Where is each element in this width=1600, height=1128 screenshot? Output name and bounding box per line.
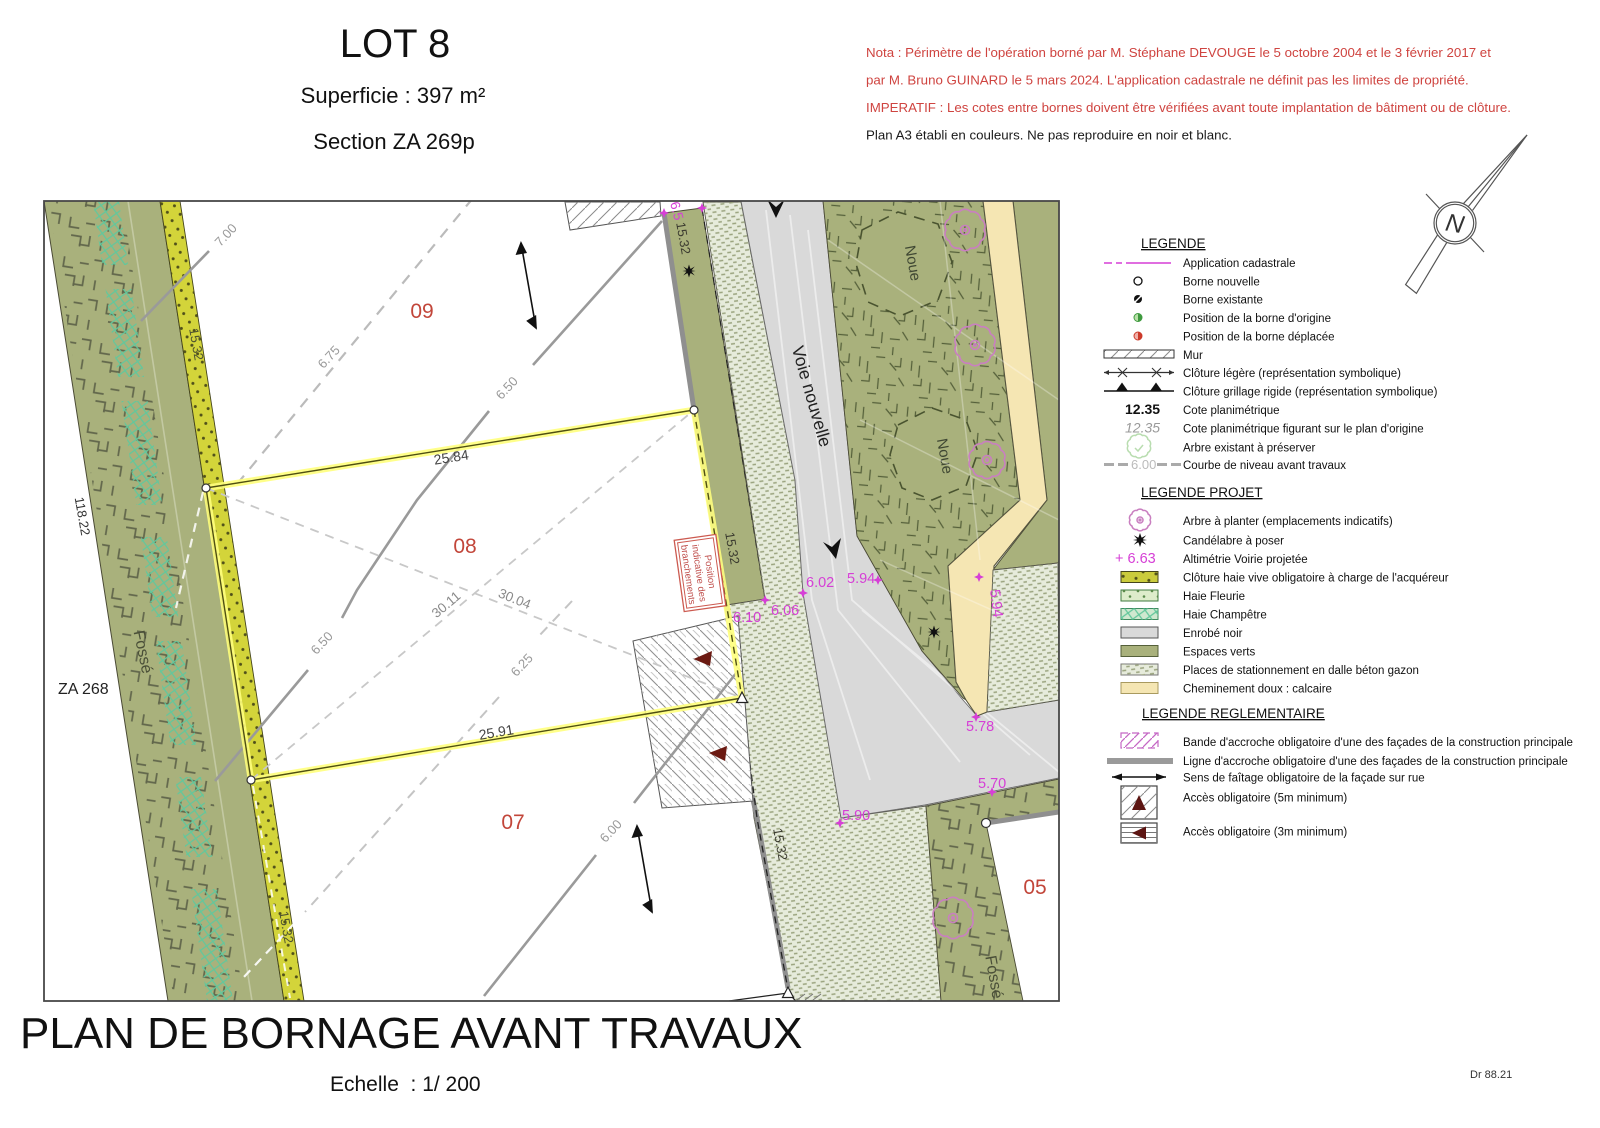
svg-text:IMPERATIF : Les cotes entre bo: IMPERATIF : Les cotes entre bornes doive… (866, 100, 1511, 115)
svg-text:Borne nouvelle: Borne nouvelle (1183, 277, 1260, 289)
svg-text:6.02: 6.02 (806, 575, 834, 591)
svg-text:05: 05 (1023, 876, 1046, 899)
svg-text:Superficie : 397 m²: Superficie : 397 m² (301, 83, 486, 108)
svg-text:5.94: 5.94 (986, 589, 1005, 619)
svg-text:Cote planimétrique figurant su: Cote planimétrique figurant sur le plan … (1183, 424, 1424, 436)
svg-text:Sens de faîtage obligatoire de: Sens de faîtage obligatoire de la façade… (1183, 773, 1425, 785)
svg-text:Espaces verts: Espaces verts (1183, 647, 1255, 659)
svg-text:par M. Bruno GUINARD le 5 mars: par M. Bruno GUINARD le 5 mars 2024. L'a… (866, 73, 1469, 88)
svg-text:Clôture haie vive obligatoire: Clôture haie vive obligatoire à charge d… (1183, 573, 1449, 585)
svg-text:07: 07 (501, 811, 524, 834)
svg-text:Cote planimétrique: Cote planimétrique (1183, 405, 1280, 417)
svg-text:6.10: 6.10 (733, 610, 761, 626)
svg-text:Dr 88.21: Dr 88.21 (1470, 1069, 1512, 1081)
svg-text:Haie Fleurie: Haie Fleurie (1183, 591, 1245, 603)
svg-text:Mur: Mur (1183, 350, 1203, 362)
svg-text:Borne existante: Borne existante (1183, 295, 1263, 307)
svg-text:Position de la borne déplacée: Position de la borne déplacée (1183, 332, 1335, 344)
svg-text:Position de la borne d'origine: Position de la borne d'origine (1183, 313, 1331, 325)
svg-text:Courbe de niveau avant travaux: Courbe de niveau avant travaux (1183, 460, 1346, 472)
svg-text:12.35: 12.35 (1125, 420, 1160, 436)
svg-text:Haie Champêtre: Haie Champêtre (1183, 610, 1267, 622)
svg-text:Plan A3 établi en couleurs. Ne: Plan A3 établi en couleurs. Ne pas repro… (866, 128, 1232, 143)
svg-text:PLAN DE BORNAGE AVANT TRAVAUX: PLAN DE BORNAGE AVANT TRAVAUX (20, 1009, 802, 1058)
svg-text:08: 08 (453, 535, 476, 558)
svg-text:6.00: 6.00 (1131, 457, 1156, 472)
svg-text:LEGENDE REGLEMENTAIRE: LEGENDE REGLEMENTAIRE (1142, 706, 1325, 721)
svg-text:Altimétrie Voirie projetée: Altimétrie Voirie projetée (1183, 554, 1308, 566)
svg-text:Enrobé noir: Enrobé noir (1183, 628, 1243, 640)
svg-text:Candélabre à poser: Candélabre à poser (1183, 536, 1284, 548)
svg-text:Echelle : 1/ 200: Echelle : 1/ 200 (330, 1073, 481, 1096)
svg-text:Bande d'accroche obligatoire d: Bande d'accroche obligatoire d'une des f… (1183, 737, 1573, 749)
svg-text:5.90: 5.90 (842, 808, 870, 824)
svg-text:Clôture grillage rigide (repré: Clôture grillage rigide (représentation … (1183, 387, 1438, 399)
svg-text:Accès obligatoire (5m minimum): Accès obligatoire (5m minimum) (1183, 793, 1347, 805)
svg-text:Ligne d'accroche obligatoire d: Ligne d'accroche obligatoire d'une des f… (1183, 756, 1568, 768)
svg-text:Places de stationnement en dal: Places de stationnement en dalle béton g… (1183, 665, 1419, 677)
svg-text:Clôture légère (représentation: Clôture légère (représentation symboliqu… (1183, 368, 1401, 380)
svg-text:5.78: 5.78 (966, 719, 994, 735)
svg-text:Section ZA 269p: Section ZA 269p (313, 129, 474, 154)
svg-text:Application cadastrale: Application cadastrale (1183, 258, 1296, 270)
svg-text:Cheminement doux : calcaire: Cheminement doux : calcaire (1183, 684, 1332, 696)
svg-text:+ 6.63: + 6.63 (1115, 551, 1156, 567)
svg-text:Nota : Périmètre de l'opératio: Nota : Périmètre de l'opération borné pa… (866, 45, 1491, 60)
svg-text:Accès obligatoire (3m minimum): Accès obligatoire (3m minimum) (1183, 827, 1347, 839)
svg-text:09: 09 (410, 300, 433, 323)
svg-text:LOT 8: LOT 8 (340, 22, 450, 66)
svg-text:Arbre existant à préserver: Arbre existant à préserver (1183, 443, 1315, 455)
svg-text:5.94: 5.94 (847, 571, 875, 587)
svg-text:ZA 268: ZA 268 (58, 681, 109, 698)
svg-text:6.06: 6.06 (771, 603, 799, 619)
svg-text:Arbre à planter (emplacements: Arbre à planter (emplacements indicatifs… (1183, 516, 1393, 528)
svg-text:LEGENDE PROJET: LEGENDE PROJET (1141, 485, 1263, 500)
svg-text:12.35: 12.35 (1125, 401, 1160, 417)
svg-text:LEGENDE: LEGENDE (1141, 236, 1206, 251)
